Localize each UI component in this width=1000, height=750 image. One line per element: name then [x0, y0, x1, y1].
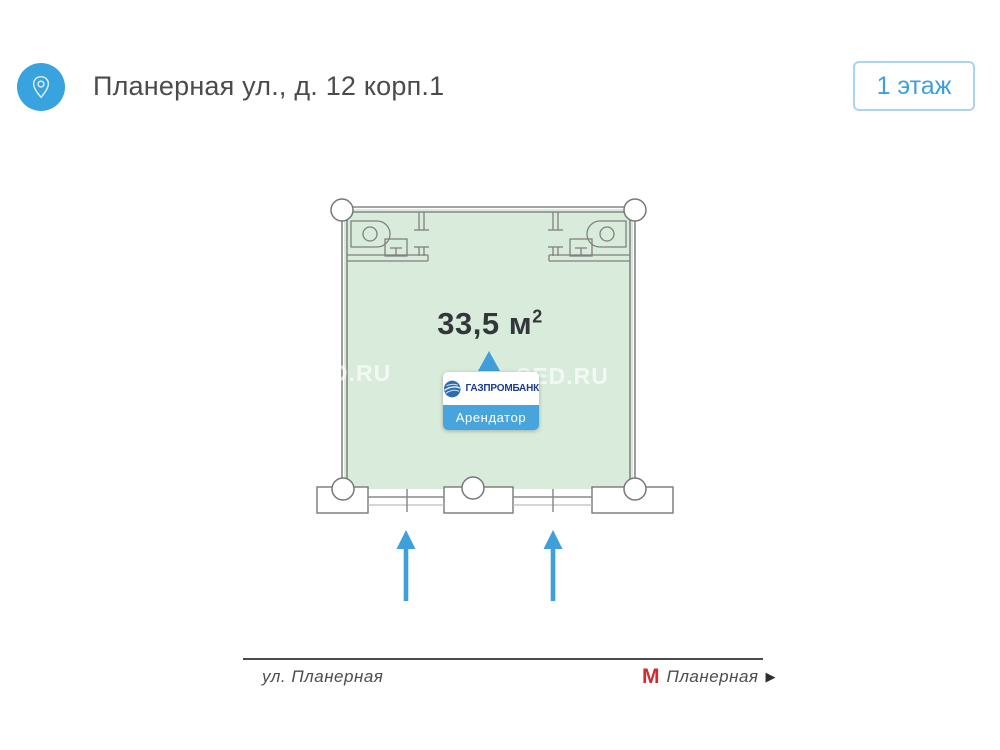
gazprombank-globe-icon	[443, 379, 461, 399]
entrance-arrows	[397, 530, 563, 601]
watermark: D.RU	[331, 360, 391, 387]
arrow-up-icon	[397, 530, 416, 601]
column-top-right	[624, 199, 646, 221]
room-area	[344, 209, 633, 489]
column-bottom-right	[624, 478, 646, 500]
area-label: 33,5 м2	[400, 306, 580, 342]
column-bottom-center	[462, 477, 484, 499]
arrow-up-icon	[544, 530, 563, 601]
tenant-role-badge: Арендатор	[443, 405, 539, 430]
tenant-brand-row: ГАЗПРОМБАНК	[443, 372, 539, 405]
tenant-brand: ГАЗПРОМБАНК	[465, 383, 539, 394]
triangle-up-icon	[478, 351, 500, 371]
tenant-card[interactable]: ГАЗПРОМБАНК Арендатор	[443, 372, 539, 430]
column-bottom-left	[332, 478, 354, 500]
area-superscript: 2	[532, 307, 543, 327]
bottom-pillars	[317, 487, 673, 513]
column-top-left	[331, 199, 353, 221]
area-value: 33,5 м	[437, 306, 532, 341]
